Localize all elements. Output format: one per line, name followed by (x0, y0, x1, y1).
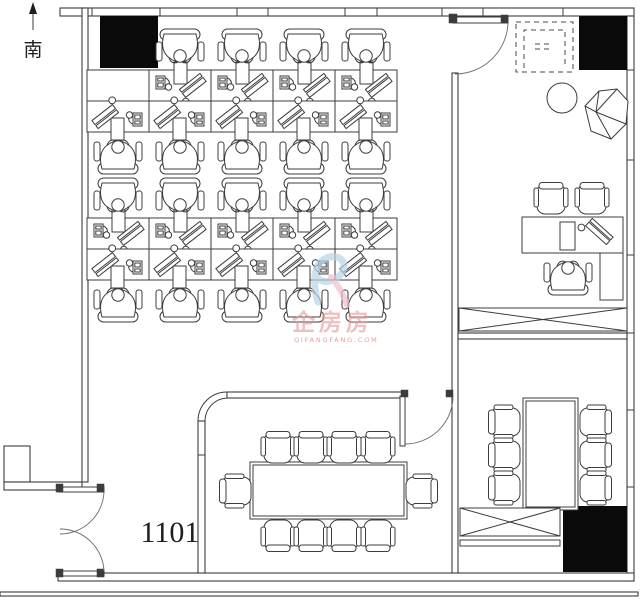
entrance-double-door (56, 484, 104, 577)
conference-curved-wall-inner (205, 398, 227, 421)
workstation-desk (273, 62, 335, 106)
workstation-desk (211, 96, 273, 140)
workstation-desk (273, 96, 335, 140)
conference-top-wall (227, 392, 405, 398)
workstation-desk (273, 210, 335, 254)
right-rooms-divider-wall (458, 333, 627, 339)
dashed-future-furniture (516, 22, 573, 72)
workstation-desk (211, 210, 273, 254)
plot-boundary-line (0, 592, 638, 596)
meeting-chair (489, 438, 521, 472)
meeting-chair (580, 438, 612, 472)
conference-chair (261, 432, 295, 464)
workstation-desk-empty (87, 70, 149, 101)
task-chair (218, 140, 266, 174)
executive-chair (544, 261, 592, 295)
lounge-chair (585, 89, 628, 139)
conference-chair (327, 520, 361, 552)
workstation-desk (149, 96, 211, 140)
conference-table (250, 462, 407, 519)
conference-chair (294, 432, 328, 464)
conference-curved-wall-outer (198, 392, 227, 421)
conference-chair (406, 474, 438, 508)
task-chair (280, 140, 328, 174)
exterior-box (4, 446, 30, 482)
task-chair (342, 140, 390, 174)
watermark-brand: 企房房 (291, 309, 373, 336)
compass-label: 南 (23, 39, 42, 61)
task-chair (94, 288, 142, 322)
conference-room-door (400, 390, 453, 446)
conference-chair (327, 432, 361, 464)
workstation-desk (335, 210, 397, 254)
workstation-desk (149, 244, 211, 288)
direction-arrow-head-icon (29, 2, 37, 14)
workstation-desk (211, 244, 273, 288)
top-wall (60, 8, 634, 16)
conference-left-wall (198, 421, 205, 573)
guest-chair (575, 183, 609, 215)
workstation-desk (335, 62, 397, 106)
meeting-cabinet (460, 508, 560, 546)
workstation-desk (87, 210, 149, 254)
watermark-tagline: QIFANGFANG.COM (294, 336, 379, 344)
conference-chair (361, 432, 395, 464)
bottom-wall (58, 573, 634, 581)
workstation-grid (87, 62, 397, 288)
executive-cabinet (459, 308, 627, 331)
task-chair (218, 178, 266, 212)
conference-room (250, 462, 407, 519)
workstation-desk (149, 62, 211, 106)
task-chair (218, 29, 266, 63)
desk-paper (560, 222, 575, 250)
executive-desk-return (600, 253, 623, 300)
workstation-desk (211, 62, 273, 106)
task-chair (156, 288, 204, 322)
task-chair (280, 178, 328, 212)
column (563, 506, 627, 572)
task-chair (342, 178, 390, 212)
task-chair (94, 178, 142, 212)
workstation-desk (335, 96, 397, 140)
conference-chair (361, 520, 395, 552)
meeting-chair (580, 405, 612, 439)
workstation-desk (87, 96, 149, 140)
floor-plan: 南 1101 企房房 QIFANGFANG.COM (0, 0, 640, 600)
task-chair (280, 29, 328, 63)
task-chair (342, 29, 390, 63)
conference-chair (220, 474, 252, 508)
workstation-desk (87, 244, 149, 288)
central-partition-wall (452, 73, 458, 573)
meeting-chair (580, 471, 612, 505)
column (100, 16, 158, 68)
meeting-chair (489, 405, 521, 439)
conference-chair (294, 520, 328, 552)
task-chair (156, 178, 204, 212)
conference-chair (261, 520, 295, 552)
guest-chair (534, 183, 568, 215)
task-chair (94, 140, 142, 174)
task-chair (218, 288, 266, 322)
task-chair (156, 29, 204, 63)
round-side-table (547, 83, 577, 113)
compass: 南 (23, 2, 42, 61)
meeting-chair (489, 471, 521, 505)
task-chair (156, 140, 204, 174)
meeting-table (523, 398, 578, 510)
column (579, 16, 627, 70)
executive-office-door (449, 14, 508, 74)
room-number-label: 1101 (141, 516, 200, 549)
workstation-desk (149, 210, 211, 254)
